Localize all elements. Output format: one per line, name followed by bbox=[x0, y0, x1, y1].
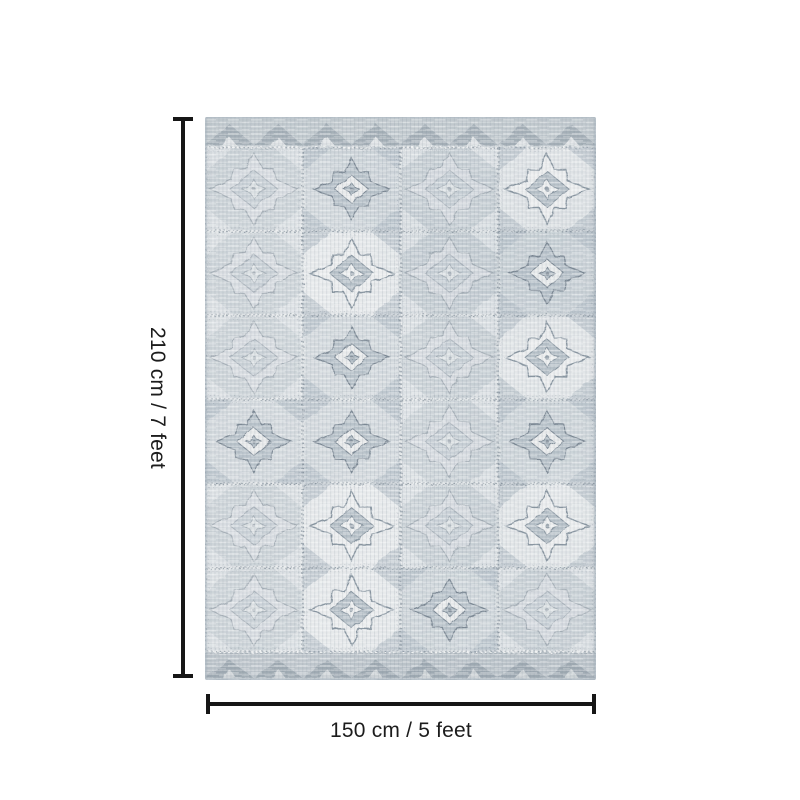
product-dimension-diagram: 210 cm / 7 feet 150 cm / 5 feet bbox=[0, 0, 800, 800]
rug-pattern-svg bbox=[205, 117, 596, 680]
height-dimension-line bbox=[181, 117, 185, 678]
rug-image bbox=[205, 117, 596, 680]
width-dimension-line bbox=[206, 702, 596, 706]
height-dimension-label: 210 cm / 7 feet bbox=[145, 327, 169, 469]
width-dimension-label: 150 cm / 5 feet bbox=[330, 719, 472, 743]
